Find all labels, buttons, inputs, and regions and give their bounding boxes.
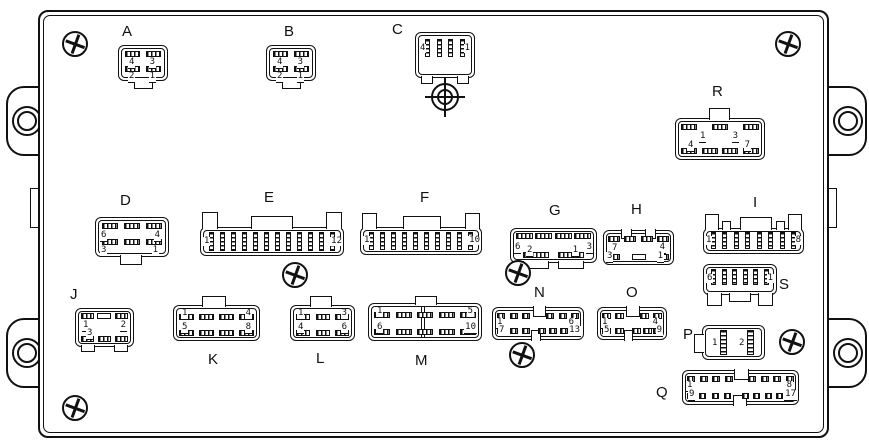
pin-row <box>711 232 796 249</box>
pin-contact <box>115 313 128 319</box>
crosshair-alignment-target-icon <box>431 83 459 111</box>
pin-number: 6 <box>376 323 383 334</box>
pin-number: 1 <box>705 236 712 245</box>
pin-contact <box>264 232 269 251</box>
connector-i-label: I <box>753 194 757 211</box>
pin-contact <box>102 223 118 229</box>
pin-contact <box>757 232 762 249</box>
pin-contact <box>722 269 727 285</box>
pin-number: 9 <box>688 390 695 401</box>
phillips-screw-icon <box>779 329 805 355</box>
pin-contact <box>402 232 407 250</box>
keying-tab <box>251 216 293 229</box>
pin-number: 6 <box>341 323 348 334</box>
connector-j-label: J <box>70 286 78 303</box>
pin-contact <box>396 312 412 318</box>
connector-g-label: G <box>549 202 561 219</box>
pin-contact <box>435 232 440 250</box>
mounting-hole-icon <box>833 338 863 368</box>
pin-contact <box>253 232 258 251</box>
pin-contact <box>199 314 214 320</box>
connector-r-label: R <box>712 83 723 100</box>
pin-contact <box>681 124 697 130</box>
pin-number: 1 <box>152 246 159 257</box>
pin-number: 8 <box>795 236 802 245</box>
connector-f: 1 10 <box>360 227 482 255</box>
pin-number: 3 <box>732 132 739 143</box>
connector-l: 1 3 4 6 <box>290 305 355 341</box>
pin-contact <box>413 232 418 250</box>
pin-contact <box>286 232 291 251</box>
pin-number: 4 <box>687 141 694 152</box>
pin-number: 4 <box>419 44 426 53</box>
pin-contact <box>538 328 546 334</box>
pin-contact <box>699 393 706 399</box>
housing-post <box>465 213 480 229</box>
pin-number: 2 <box>526 246 533 257</box>
connector-j: 1 2 3 <box>75 308 134 347</box>
pin-number: 13 <box>568 326 581 337</box>
pin-number: 5 <box>603 326 610 337</box>
pin-contact <box>242 232 247 251</box>
pin-row <box>369 232 473 250</box>
pin-row <box>209 232 335 251</box>
pin-row <box>681 124 759 130</box>
pin-number: 3 <box>606 252 613 263</box>
housing-foot <box>114 345 128 352</box>
phillips-screw-icon <box>62 31 88 57</box>
pin-number: 6 <box>514 243 521 254</box>
pin-contact <box>702 148 718 154</box>
pin-contact <box>231 232 236 251</box>
pin-number: 3 <box>86 329 93 340</box>
pin-contact <box>734 232 739 249</box>
pin-contact <box>722 148 738 154</box>
pin-contact <box>417 312 433 318</box>
pin-contact <box>510 328 518 334</box>
pin-row <box>102 223 162 229</box>
pin-number: 4 <box>297 323 304 334</box>
pin-contact <box>641 236 653 242</box>
pin-row <box>711 269 769 285</box>
pin-contact <box>753 393 760 399</box>
pin-contact <box>98 336 111 342</box>
pin-contact <box>308 232 313 251</box>
connector-h: 7 4 3 1 <box>603 230 674 265</box>
pin-number: 1 <box>699 132 706 143</box>
connector-p-label: P <box>683 326 693 343</box>
pin-number: 1 <box>711 339 718 348</box>
pin-number: 17 <box>784 390 797 401</box>
keying-tab <box>403 216 441 229</box>
keying-tab <box>457 76 469 84</box>
pin-contact <box>516 233 533 239</box>
housing-post <box>705 214 719 230</box>
pin-number: 1 <box>767 274 774 283</box>
pin-contact <box>761 376 769 382</box>
connector-a: 4 3 2 1 <box>118 45 168 81</box>
pin-contact <box>765 393 772 399</box>
pin-number: 4 <box>128 58 135 69</box>
pin-number: 1 <box>376 307 383 318</box>
pin-contact <box>220 232 225 251</box>
housing-foot <box>558 261 584 269</box>
phillips-screw-icon <box>282 262 308 288</box>
connector-i: 1 8 <box>703 228 804 254</box>
connector-p: 1 2 <box>702 325 765 360</box>
pin-number: 9 <box>656 326 663 337</box>
pin-contact <box>448 39 453 57</box>
pin-number: 1 <box>203 237 210 246</box>
pin-number: 7 <box>498 326 505 337</box>
pin-number: 12 <box>330 237 343 246</box>
pin-row <box>516 233 591 239</box>
keying-tab <box>415 296 437 305</box>
pin-contact <box>768 232 773 249</box>
pin-contact <box>615 328 624 334</box>
pin-number: 3 <box>341 309 348 320</box>
housing-foot <box>758 293 773 306</box>
pin-number: 2 <box>738 339 745 348</box>
pin-contact <box>773 376 781 382</box>
pin-contact <box>219 314 234 320</box>
pin-number: 3 <box>100 246 107 257</box>
mounting-hole-icon <box>833 106 863 136</box>
pin-contact <box>391 232 396 250</box>
pin-row <box>81 313 128 319</box>
pin-number: 1 <box>572 246 579 257</box>
housing-foot <box>707 293 722 306</box>
pin-number: 4 <box>154 231 161 242</box>
connector-b: 4 3 2 1 <box>266 45 316 81</box>
pin-number: 1 <box>464 44 471 53</box>
pin-contact <box>446 232 451 250</box>
phillips-screw-icon <box>775 31 801 57</box>
pin-number: 6 <box>100 231 107 242</box>
pin-contact <box>574 233 591 239</box>
pin-contact <box>722 232 727 249</box>
pin-number: 8 <box>245 323 252 334</box>
pin-contact <box>712 376 720 382</box>
connector-f-label: F <box>420 189 429 206</box>
phillips-screw-icon <box>505 260 531 286</box>
pin-contact <box>712 393 719 399</box>
pin-contact <box>546 313 554 319</box>
pin-number: 1 <box>363 236 370 245</box>
pin-number: 4 <box>276 58 283 69</box>
connector-r: 1 3 4 7 <box>675 118 765 160</box>
pin-contact <box>439 329 455 335</box>
keying-tab <box>120 255 142 265</box>
pin-number: 4 <box>245 309 252 320</box>
connector-a-label: A <box>122 23 132 40</box>
mounting-ear <box>825 318 867 388</box>
pin-contact <box>743 124 759 130</box>
pin-contact <box>417 329 433 335</box>
pin-contact <box>115 336 128 342</box>
pin-contact <box>535 233 552 239</box>
housing-notch <box>626 306 640 317</box>
phillips-screw-icon <box>509 342 535 368</box>
keying-tab <box>709 108 730 120</box>
pin-contact <box>608 236 620 242</box>
pin-number: 2 <box>120 321 127 332</box>
pin-contact <box>510 313 518 319</box>
pin-contact <box>776 393 783 399</box>
connector-e-label: E <box>264 189 274 206</box>
pin-contact <box>439 312 455 318</box>
pin-contact <box>720 330 727 355</box>
keying-tab <box>421 76 433 84</box>
connector-q: 1 8 9 17 <box>682 370 799 405</box>
connector-k-label: K <box>208 351 218 368</box>
pin-contact <box>275 232 280 251</box>
connector-s-label: S <box>779 276 789 293</box>
pin-number: 3 <box>149 58 156 69</box>
connector-c: 4 1 <box>415 32 475 78</box>
pin-contact <box>643 328 652 334</box>
pin-contact <box>316 314 330 320</box>
pin-contact <box>316 330 330 336</box>
pin-row <box>425 39 465 57</box>
pin-contact <box>219 330 234 336</box>
housing-post <box>776 221 785 230</box>
housing-post <box>722 221 731 230</box>
pin-row <box>374 312 476 318</box>
connector-m-label: M <box>415 352 428 369</box>
pin-number: 1 <box>657 252 664 263</box>
pin-contact <box>380 232 385 250</box>
housing-foot <box>81 345 95 352</box>
keying-tab <box>310 296 332 307</box>
pin-contact <box>732 269 737 285</box>
pin-number: 6 <box>706 274 713 283</box>
connector-o: 1 4 5 9 <box>597 307 667 340</box>
pin-contact <box>319 232 324 251</box>
pin-contact <box>457 232 462 250</box>
keying-tab <box>740 217 772 230</box>
connector-g: 6 2 1 3 <box>510 228 597 263</box>
connector-pinout-diagram: A 4 3 2 1 B 4 3 2 1 C 4 1 R 1 3 4 7 <box>0 0 869 447</box>
pin-contact <box>724 393 731 399</box>
pin-contact <box>632 328 641 334</box>
housing-post <box>362 213 377 229</box>
pin-row <box>179 314 254 320</box>
pin-contact <box>747 330 754 355</box>
pin-number: 1 <box>181 309 188 320</box>
pin-row <box>687 376 733 382</box>
keying-tab <box>202 296 226 307</box>
pin-contact <box>199 330 214 336</box>
housing-post <box>788 214 802 230</box>
pin-contact <box>81 313 94 319</box>
connector-s: 6 1 <box>703 264 777 295</box>
connector-b-label: B <box>284 23 294 40</box>
pin-contact <box>615 313 624 319</box>
pin-contact <box>748 376 756 382</box>
phillips-screw-icon <box>62 395 88 421</box>
pin-number: 5 <box>181 323 188 334</box>
pin-contact <box>555 233 572 239</box>
pin-contact <box>522 313 530 319</box>
pin-number: 3 <box>297 58 304 69</box>
pin-contact <box>124 239 140 245</box>
housing-post <box>326 212 342 229</box>
pin-number: 3 <box>586 243 593 254</box>
pin-contact <box>124 223 140 229</box>
pin-contact <box>624 236 636 242</box>
connector-q-label: Q <box>656 384 668 401</box>
pin-contact <box>712 124 728 130</box>
pin-number: 1 <box>149 72 156 83</box>
pin-contact <box>700 376 708 382</box>
pin-contact <box>745 232 750 249</box>
pin-contact <box>640 313 649 319</box>
pin-row <box>179 330 254 336</box>
pin-number: 10 <box>468 236 481 245</box>
connector-e: 1 12 <box>200 227 344 256</box>
keying-notch <box>694 334 704 353</box>
pin-contact <box>549 328 557 334</box>
mounting-ear <box>825 86 867 156</box>
pin-number: 7 <box>744 141 751 152</box>
pin-number: 2 <box>276 72 283 83</box>
pin-contact <box>522 328 530 334</box>
pin-number: 2 <box>128 72 135 83</box>
connector-l-label: L <box>316 350 324 367</box>
pin-contact <box>743 269 748 285</box>
pin-contact <box>559 313 567 319</box>
pin-contact <box>437 39 442 57</box>
pin-contact <box>742 393 749 399</box>
pin-contact <box>424 232 429 250</box>
connector-d: 6 4 3 1 <box>95 217 169 257</box>
pin-contact <box>725 376 733 382</box>
housing-foot <box>729 293 751 302</box>
pin-number: 1 <box>297 309 304 320</box>
connector-c-label: C <box>392 21 403 38</box>
pin-row <box>374 329 476 335</box>
pin-number: 5 <box>467 307 474 318</box>
connector-o-label: O <box>626 284 638 301</box>
pin-contact <box>297 232 302 251</box>
connector-m: 1 5 6 10 <box>368 303 482 341</box>
connector-d-label: D <box>120 192 131 209</box>
connector-n-label: N <box>534 284 545 301</box>
connector-h-label: H <box>631 201 642 218</box>
pin-number: 10 <box>464 323 477 334</box>
housing-post <box>202 212 218 229</box>
pin-number: 1 <box>297 72 304 83</box>
connector-n: 1 6 7 13 <box>492 307 584 340</box>
pin-contact <box>146 223 162 229</box>
pin-contact <box>396 329 412 335</box>
housing-notch <box>734 369 749 380</box>
connector-k: 1 4 5 8 <box>173 305 260 341</box>
pin-contact <box>780 232 785 249</box>
housing-notch <box>533 306 546 317</box>
pin-contact <box>753 269 758 285</box>
blank-slot <box>632 254 646 260</box>
